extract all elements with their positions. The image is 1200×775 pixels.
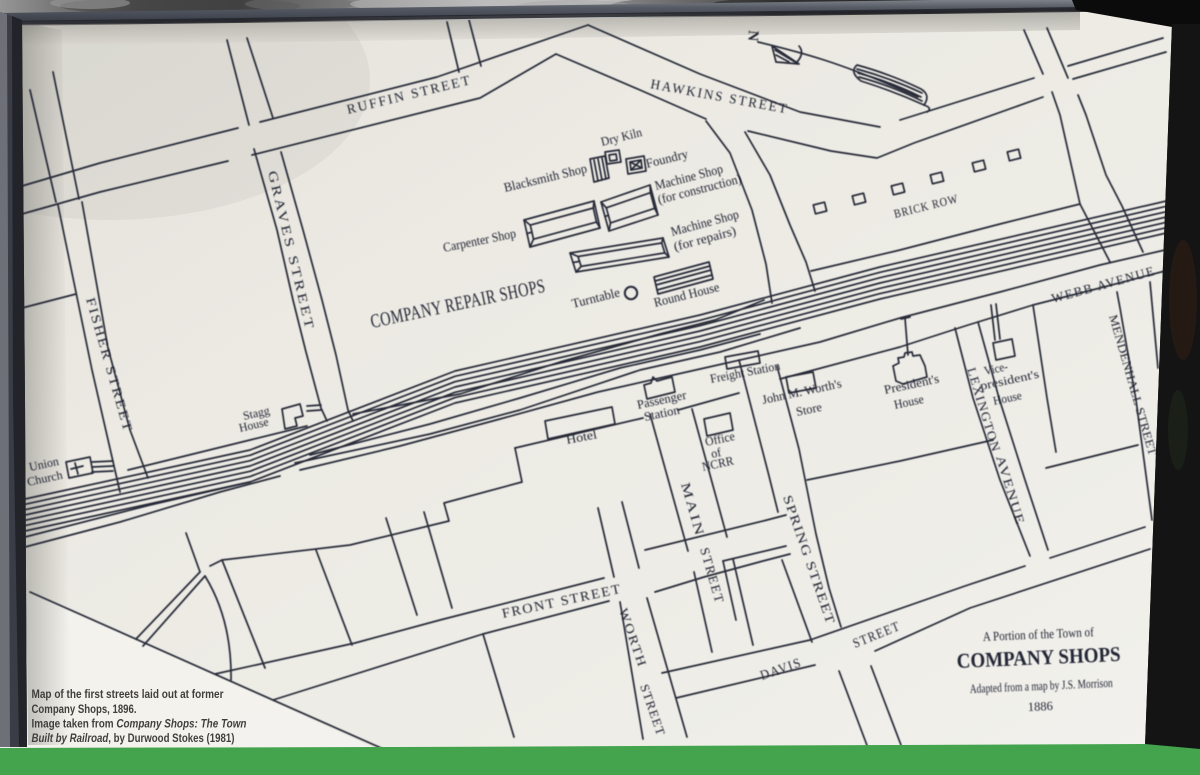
svg-text:Image taken from Company Shops: Image taken from Company Shops: The Town — [32, 717, 247, 731]
svg-text:1886: 1886 — [1028, 699, 1054, 714]
svg-text:Company Shops, 1896.: Company Shops, 1896. — [32, 702, 137, 716]
svg-text:N: N — [744, 30, 761, 42]
svg-text:Built by Railroad, by Durwood: Built by Railroad, by Durwood Stokes (19… — [32, 731, 235, 745]
svg-text:Map of the first streets laid: Map of the first streets laid out at for… — [32, 687, 224, 701]
